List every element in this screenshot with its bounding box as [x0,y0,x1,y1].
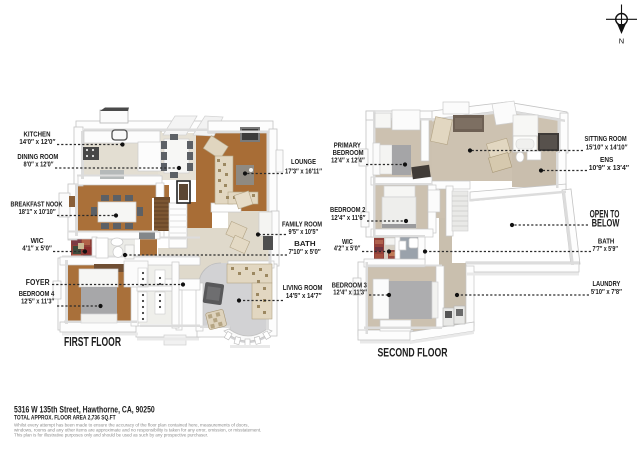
svg-text:7′10″ x 5′0″: 7′10″ x 5′0″ [289,249,322,256]
svg-text:WIC: WIC [31,236,45,245]
svg-text:12′4″ x 11′3″: 12′4″ x 11′3″ [333,289,367,296]
svg-text:BEDROOM 3: BEDROOM 3 [332,281,367,290]
svg-text:LAUNDRY: LAUNDRY [592,279,620,288]
svg-text:BATH: BATH [294,239,315,248]
svg-text:18′1″ x 10′10″: 18′1″ x 10′10″ [19,209,57,216]
svg-text:4′2″ x 5′0″: 4′2″ x 5′0″ [334,245,361,252]
svg-text:This plan is for illustrative: This plan is for illustrative purposes o… [14,432,208,438]
svg-text:N: N [619,37,624,46]
svg-text:12′4″ x 11′6″: 12′4″ x 11′6″ [331,215,366,222]
svg-text:SITTING ROOM: SITTING ROOM [585,134,627,143]
svg-text:17′3″ x 16′11″: 17′3″ x 16′11″ [285,168,323,175]
svg-text:KITCHEN: KITCHEN [24,129,51,138]
svg-text:12′5″ x 11′3″: 12′5″ x 11′3″ [21,298,55,305]
svg-text:TOTAL APPROX. FLOOR AREA 2,736: TOTAL APPROX. FLOOR AREA 2,736 SQ.FT [14,415,116,422]
svg-text:BEDROOM 2: BEDROOM 2 [330,205,365,214]
svg-text:FOYER: FOYER [26,277,50,287]
svg-text:FIRST FLOOR: FIRST FLOOR [64,335,121,349]
svg-text:DINING ROOM: DINING ROOM [17,152,58,161]
svg-text:BREAKFAST NOOK: BREAKFAST NOOK [11,199,63,208]
svg-text:5316 W 135th Street, Hawthorne: 5316 W 135th Street, Hawthorne, CA, 9025… [14,405,155,415]
svg-text:BATH: BATH [598,237,614,246]
svg-text:SECOND FLOOR: SECOND FLOOR [378,347,449,359]
svg-text:14′0″ x 12′0″: 14′0″ x 12′0″ [19,139,56,146]
svg-text:BEDROOM: BEDROOM [333,148,364,157]
svg-text:LIVING ROOM: LIVING ROOM [283,283,323,292]
svg-text:9′5″ x 10′5″: 9′5″ x 10′5″ [289,229,319,236]
svg-text:4′1″ x 5′0″: 4′1″ x 5′0″ [22,245,52,252]
svg-text:8′0″ x 12′0″: 8′0″ x 12′0″ [24,161,55,168]
svg-text:BEDROOM 4: BEDROOM 4 [19,289,55,298]
svg-text:7′7″ x 5′9″: 7′7″ x 5′9″ [593,246,619,253]
svg-text:BELOW: BELOW [592,218,620,230]
svg-text:12′4″ x 12′4″: 12′4″ x 12′4″ [331,158,365,165]
svg-text:LOUNGE: LOUNGE [291,157,316,166]
svg-text:ENS: ENS [600,155,613,164]
svg-text:14′5″ x 14′7″: 14′5″ x 14′7″ [286,293,322,300]
svg-text:5′10″ x 7′8″: 5′10″ x 7′8″ [591,289,623,296]
svg-text:15′10″ x 14′10″: 15′10″ x 14′10″ [586,144,628,151]
svg-text:10′9″ x 13′4″: 10′9″ x 13′4″ [589,165,630,172]
svg-text:FAMILY ROOM: FAMILY ROOM [282,219,322,228]
